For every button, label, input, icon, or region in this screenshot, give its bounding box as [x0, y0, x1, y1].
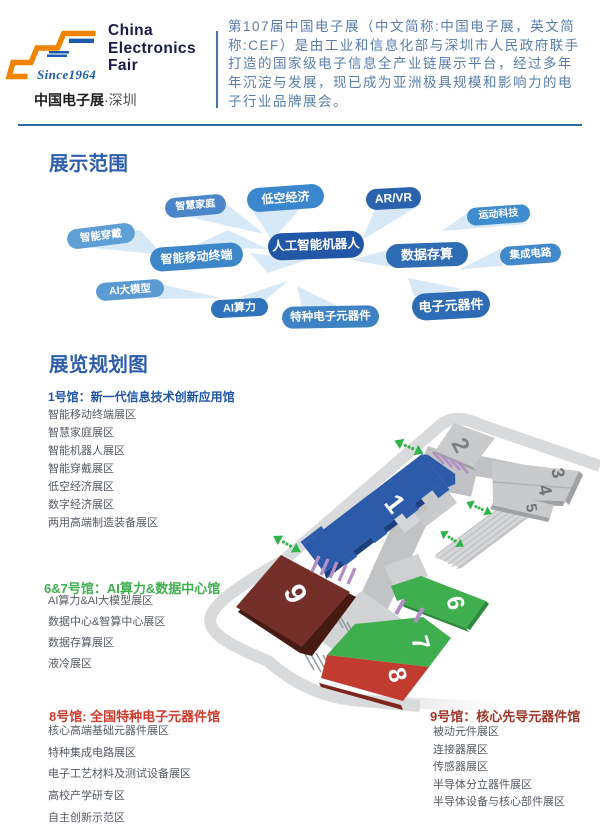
svg-text:9: 9 — [277, 579, 314, 608]
svg-text:8: 8 — [382, 664, 413, 685]
svg-text:7: 7 — [405, 633, 435, 653]
svg-text:6: 6 — [440, 593, 469, 612]
svg-text:2: 2 — [447, 433, 476, 457]
svg-text:3: 3 — [547, 466, 569, 480]
svg-text:5: 5 — [522, 502, 540, 513]
svg-text:4: 4 — [534, 483, 556, 497]
svg-text:1: 1 — [378, 489, 411, 519]
